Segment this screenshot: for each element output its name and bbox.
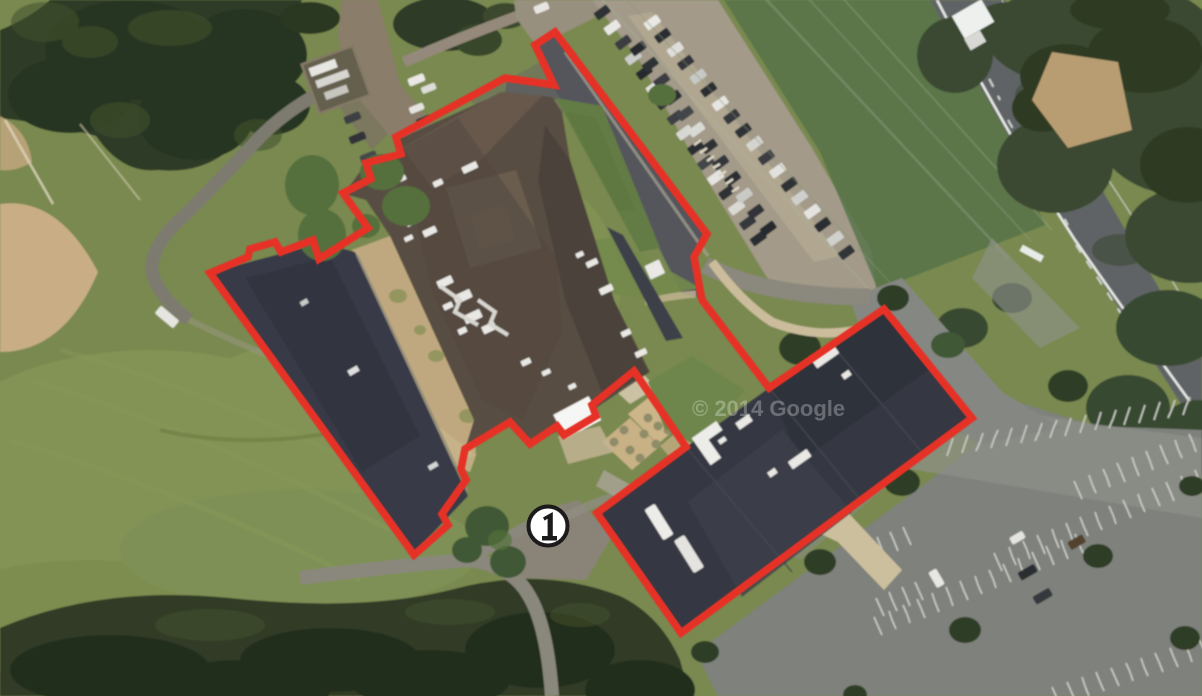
svg-text:© 2014 Google: © 2014 Google [692, 396, 845, 421]
